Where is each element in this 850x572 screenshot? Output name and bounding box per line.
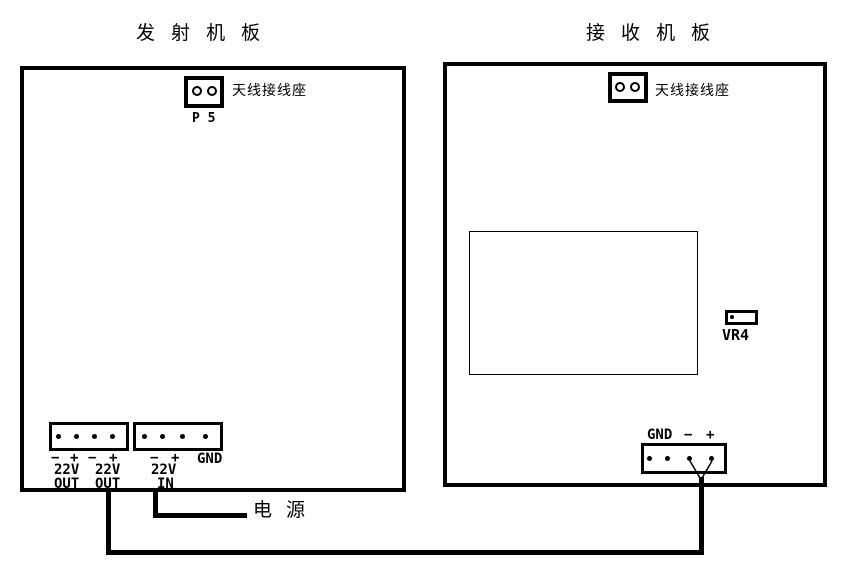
pin-dot xyxy=(203,434,208,439)
receiver-board-title: 接 收 机 板 xyxy=(586,24,715,43)
vr4-trimmer-icon xyxy=(725,310,758,325)
wire-out-vertical xyxy=(106,488,111,555)
antenna-pin-hole-icon xyxy=(192,86,202,96)
voltage-label: 22V xyxy=(95,463,120,477)
trimmer-pin-dot xyxy=(730,315,734,319)
pin-dot xyxy=(74,434,79,439)
antenna-pin-hole-icon xyxy=(207,86,217,96)
antenna-pin-hole-icon xyxy=(630,82,640,92)
wire-bottom-horizontal xyxy=(106,550,704,555)
receiver-module-outline xyxy=(469,231,698,375)
wire-power-horizontal xyxy=(153,513,247,518)
transmitter-board-title: 发 射 机 板 xyxy=(136,24,265,43)
transmitter-antenna-socket-icon xyxy=(184,76,224,108)
voltage-label: 22V xyxy=(54,463,79,477)
transmitter-antenna-designator: P 5 xyxy=(192,112,215,125)
polarity-sign: + xyxy=(706,428,714,442)
antenna-pin-hole-icon xyxy=(615,82,625,92)
pin-dot xyxy=(647,456,652,461)
pin-dot xyxy=(665,456,670,461)
pin-dot xyxy=(56,434,61,439)
pin-dot xyxy=(92,434,97,439)
transmitter-input-connector xyxy=(133,422,223,451)
wiring-diagram: 发 射 机 板 接 收 机 板 天线接线座 P 5 − + − + 22V 22… xyxy=(0,0,850,572)
gnd-label: GND xyxy=(647,428,672,442)
pin-dot xyxy=(160,434,165,439)
receiver-antenna-label: 天线接线座 xyxy=(655,84,730,98)
voltage-label: 22V xyxy=(151,463,176,477)
direction-label: OUT xyxy=(54,477,79,491)
pin-dot xyxy=(142,434,147,439)
direction-label: IN xyxy=(157,477,174,491)
polarity-sign: − xyxy=(684,428,692,442)
transmitter-antenna-label: 天线接线座 xyxy=(232,84,307,98)
transmitter-output-connector xyxy=(49,422,129,451)
pin-dot xyxy=(180,434,185,439)
power-source-label: 电 源 xyxy=(253,501,309,520)
gnd-label: GND xyxy=(197,452,222,466)
wire-receiver-vertical xyxy=(699,477,704,555)
receiver-antenna-socket-icon xyxy=(608,72,648,103)
vr4-designator: VR4 xyxy=(722,328,749,343)
pin-dot xyxy=(110,434,115,439)
